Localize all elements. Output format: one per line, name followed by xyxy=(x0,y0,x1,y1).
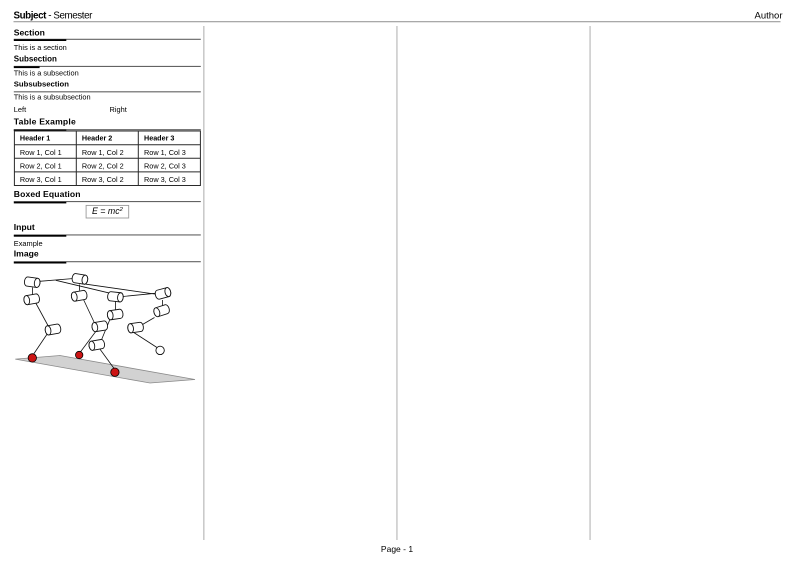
svg-text:Left: Left xyxy=(14,105,26,114)
svg-text:Row 3, Col 1: Row 3, Col 1 xyxy=(20,175,62,184)
svg-text:Row 1, Col 2: Row 1, Col 2 xyxy=(82,148,124,157)
svg-text:E = mc2: E = mc2 xyxy=(92,206,124,216)
svg-text:Row 2, Col 2: Row 2, Col 2 xyxy=(82,161,124,170)
svg-text:Subsection: Subsection xyxy=(14,55,57,64)
svg-text:Header 3: Header 3 xyxy=(144,134,174,143)
svg-text:Header 2: Header 2 xyxy=(82,134,112,143)
svg-text:Right: Right xyxy=(110,105,127,114)
svg-text:Author: Author xyxy=(755,10,783,21)
svg-text:Header 1: Header 1 xyxy=(20,134,50,143)
svg-text:This is a section: This is a section xyxy=(14,43,67,52)
svg-text:Row 2, Col 3: Row 2, Col 3 xyxy=(144,161,186,170)
svg-text:Page - 1: Page - 1 xyxy=(381,544,413,554)
svg-text:Section: Section xyxy=(14,27,45,37)
svg-text:Table Example: Table Example xyxy=(14,117,76,127)
svg-text:Row 3, Col 2: Row 3, Col 2 xyxy=(82,175,124,184)
svg-text:Row 2, Col 1: Row 2, Col 1 xyxy=(20,161,62,170)
svg-text:Example: Example xyxy=(14,239,43,248)
svg-text:Subsubsection: Subsubsection xyxy=(14,79,69,88)
svg-text:This is a subsection: This is a subsection xyxy=(14,69,79,78)
svg-text:Image: Image xyxy=(14,248,39,258)
svg-text:Row 1, Col 1: Row 1, Col 1 xyxy=(20,148,62,157)
svg-text:Input: Input xyxy=(14,222,35,232)
svg-text:This is a subsubsection: This is a subsubsection xyxy=(14,93,91,102)
svg-text:Row 3, Col 3: Row 3, Col 3 xyxy=(144,175,186,184)
svg-text:Boxed Equation: Boxed Equation xyxy=(14,189,81,199)
svg-text:Subject - Semester: Subject - Semester xyxy=(14,11,94,22)
svg-text:Row 1, Col 3: Row 1, Col 3 xyxy=(144,148,186,157)
